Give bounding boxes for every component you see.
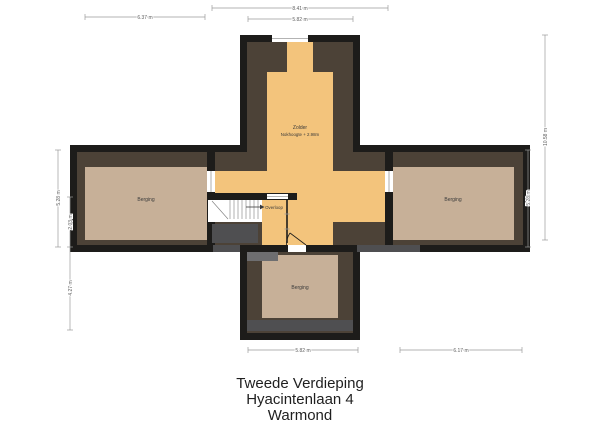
title-block: Tweede Verdieping Hyacintenlaan 4 Warmon… [236, 375, 364, 424]
attic-strip-narrow [287, 42, 313, 72]
label-zolder-sub: Nokhoogte + 2.98m [281, 132, 320, 137]
label-zolder: Zolder [293, 125, 308, 131]
dim-right-inner-label: 5.28 m [526, 190, 532, 205]
floor-plan-svg: Zolder Nokhoogte + 2.98m Berging Berging… [0, 0, 600, 424]
door-opening-gap [288, 245, 306, 252]
dim-right-outer-label: 10.58 m [543, 128, 549, 146]
label-berging-left: Berging [137, 197, 154, 203]
title-city: Warmond [268, 407, 332, 424]
dim-top-left-label: 6.37 m [137, 15, 152, 21]
storage-right [393, 167, 514, 240]
void-wall-left-segment [213, 245, 240, 252]
wall-right-window [385, 152, 393, 245]
void-bottom-strip [247, 320, 353, 331]
dim-left-inner-upper-label: 2.03 m [68, 214, 74, 229]
dim-top-inner-label: 5.82 m [292, 17, 307, 23]
title-floor: Tweede Verdieping [236, 375, 364, 392]
label-berging-bottom: Berging [291, 285, 308, 291]
title-street: Hyacintenlaan 4 [246, 391, 354, 408]
dim-bottom-center-label: 5.82 m [295, 348, 310, 354]
dim-left-inner-lower-label: 4.27 m [68, 280, 74, 295]
label-berging-right: Berging [444, 197, 461, 203]
label-overloop: Overloop [265, 205, 283, 210]
void-under-stairs [212, 224, 258, 243]
staircase [208, 200, 265, 222]
void-bottom-wing-corner [247, 252, 278, 261]
dim-left-outer-label: 5.28 m [56, 190, 62, 205]
storage-left [85, 167, 207, 240]
void-wall-right-segment [357, 245, 420, 252]
dim-top-outer-label: 8.41 m [292, 6, 307, 12]
dim-bottom-right-label: 6.17 m [453, 348, 468, 354]
